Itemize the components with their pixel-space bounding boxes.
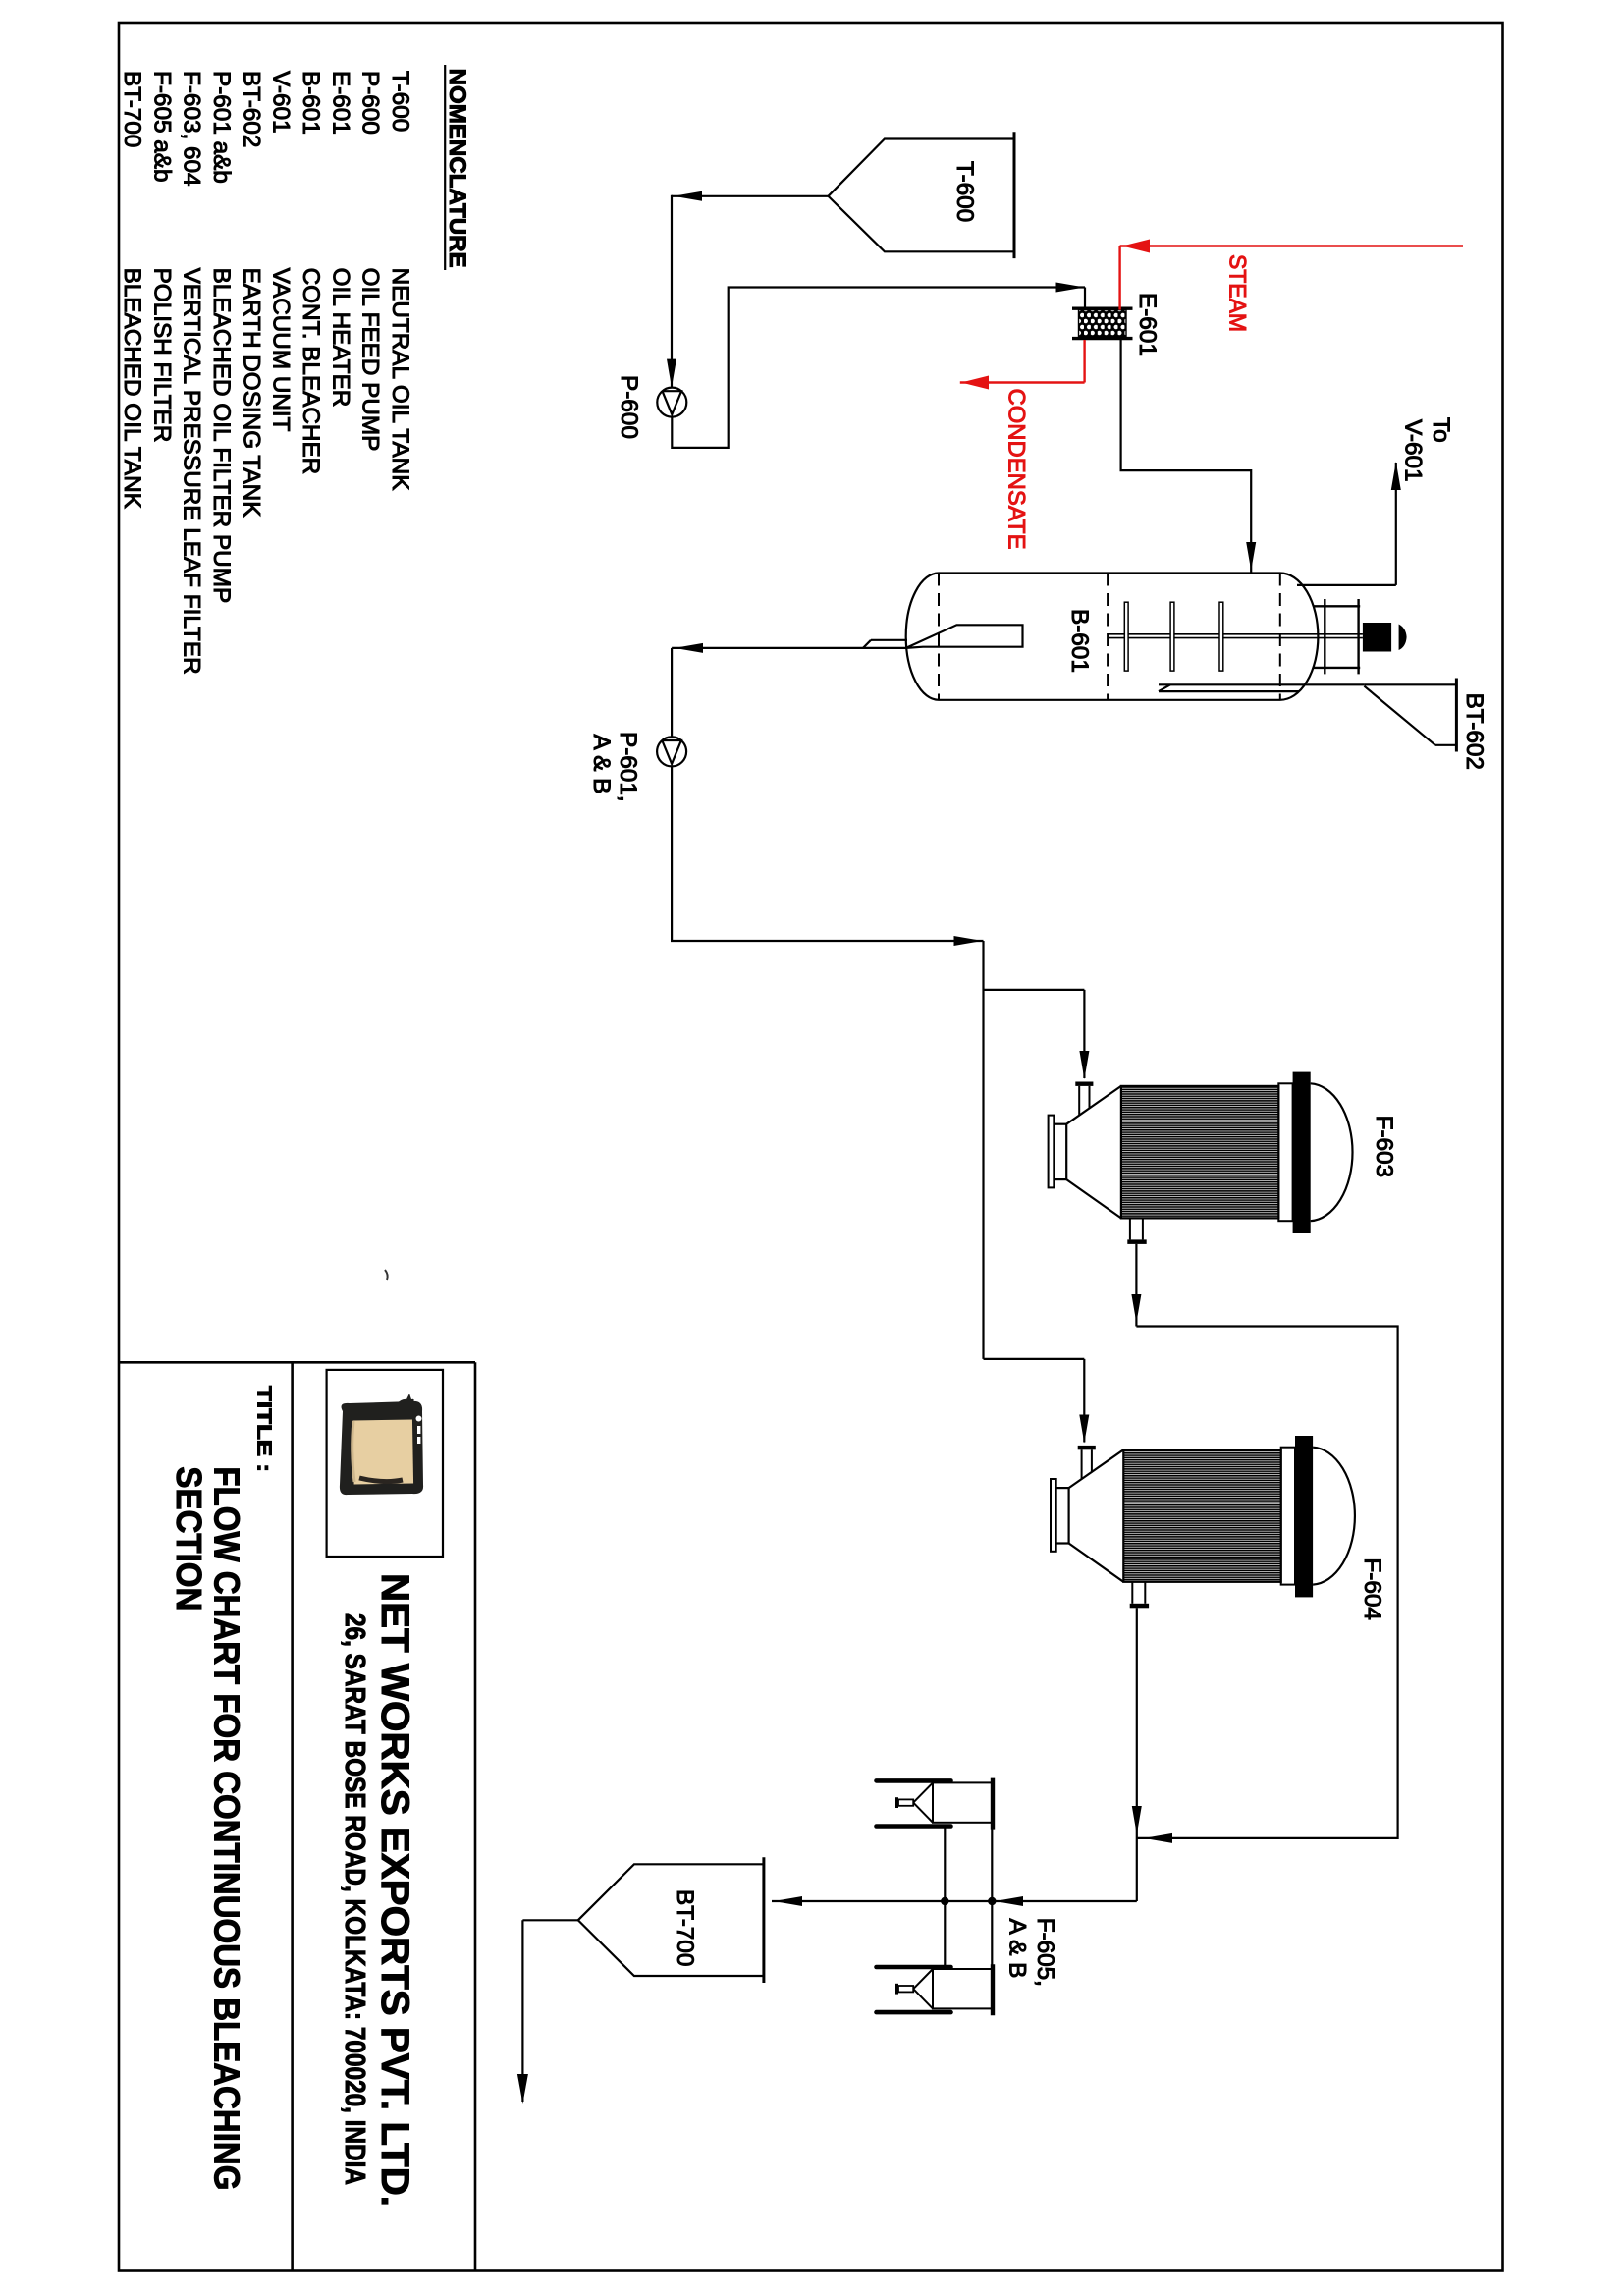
svg-text:STEAM: STEAM [1223, 254, 1250, 332]
svg-text:VACUUM UNIT: VACUUM UNIT [268, 268, 295, 432]
svg-text:26, SARAT BOSE ROAD, KOLKATA:: 26, SARAT BOSE ROAD, KOLKATA: 700020, IN… [339, 1613, 370, 2185]
svg-text:OIL HEATER: OIL HEATER [327, 268, 353, 408]
svg-text:B-601: B-601 [298, 71, 324, 135]
svg-text:BT-700: BT-700 [672, 1889, 698, 1966]
svg-text:BLEACHED OIL FILTER PUMP: BLEACHED OIL FILTER PUMP [208, 268, 235, 604]
svg-text:POLISH FILTER: POLISH FILTER [148, 268, 175, 443]
svg-text:TITLE :: TITLE : [253, 1386, 275, 1472]
svg-text:BLEACHED OIL TANK: BLEACHED OIL TANK [119, 268, 145, 509]
svg-text:P-601,: P-601, [615, 732, 641, 802]
svg-text:OIL FEED PUMP: OIL FEED PUMP [357, 268, 384, 452]
svg-text:NEUTRAL OIL TANK: NEUTRAL OIL TANK [387, 268, 413, 491]
svg-text:E-601: E-601 [327, 71, 353, 135]
svg-text:A & B: A & B [1004, 1919, 1031, 1979]
svg-text:A & B: A & B [588, 735, 615, 794]
svg-text:T-600: T-600 [387, 71, 413, 132]
svg-text:P-601 a&b: P-601 a&b [208, 71, 235, 184]
svg-text:BT-602: BT-602 [1461, 693, 1488, 770]
svg-text:F-603, 604: F-603, 604 [179, 71, 205, 187]
svg-text:SECTION: SECTION [169, 1466, 209, 1611]
svg-text:BT-602: BT-602 [238, 71, 264, 147]
svg-text:E-601: E-601 [1134, 293, 1161, 356]
svg-text:F-603: F-603 [1371, 1116, 1397, 1177]
svg-text:NOMENCLATURE: NOMENCLATURE [444, 69, 470, 268]
svg-text:P-600: P-600 [616, 375, 642, 439]
svg-text:CONT. BLEACHER: CONT. BLEACHER [298, 268, 324, 475]
svg-text:F-605 a&b: F-605 a&b [148, 71, 175, 182]
svg-text:V-601: V-601 [1400, 419, 1427, 482]
svg-text:P-600: P-600 [357, 71, 384, 135]
svg-text:FLOW CHART FOR CONTINUOUS BLE: FLOW CHART FOR CONTINUOUS BLEACHING [207, 1466, 247, 2190]
svg-text:V-601: V-601 [268, 71, 295, 134]
svg-text:F-604: F-604 [1359, 1558, 1385, 1619]
svg-text:B-601: B-601 [1066, 609, 1093, 673]
svg-text:CONDENSATE: CONDENSATE [1003, 389, 1030, 550]
svg-text:NET WORKS EXPORTS PVT. LTD.: NET WORKS EXPORTS PVT. LTD. [373, 1573, 416, 2207]
svg-text:VERTICAL PRESSURE LEAF FILTER: VERTICAL PRESSURE LEAF FILTER [179, 268, 205, 675]
svg-text:F-605,: F-605, [1032, 1918, 1058, 1987]
svg-text:EARTH DOSING TANK: EARTH DOSING TANK [238, 268, 264, 518]
svg-text:To: To [1428, 417, 1454, 443]
svg-text:T-600: T-600 [951, 161, 978, 222]
svg-text:BT-700: BT-700 [119, 71, 145, 147]
